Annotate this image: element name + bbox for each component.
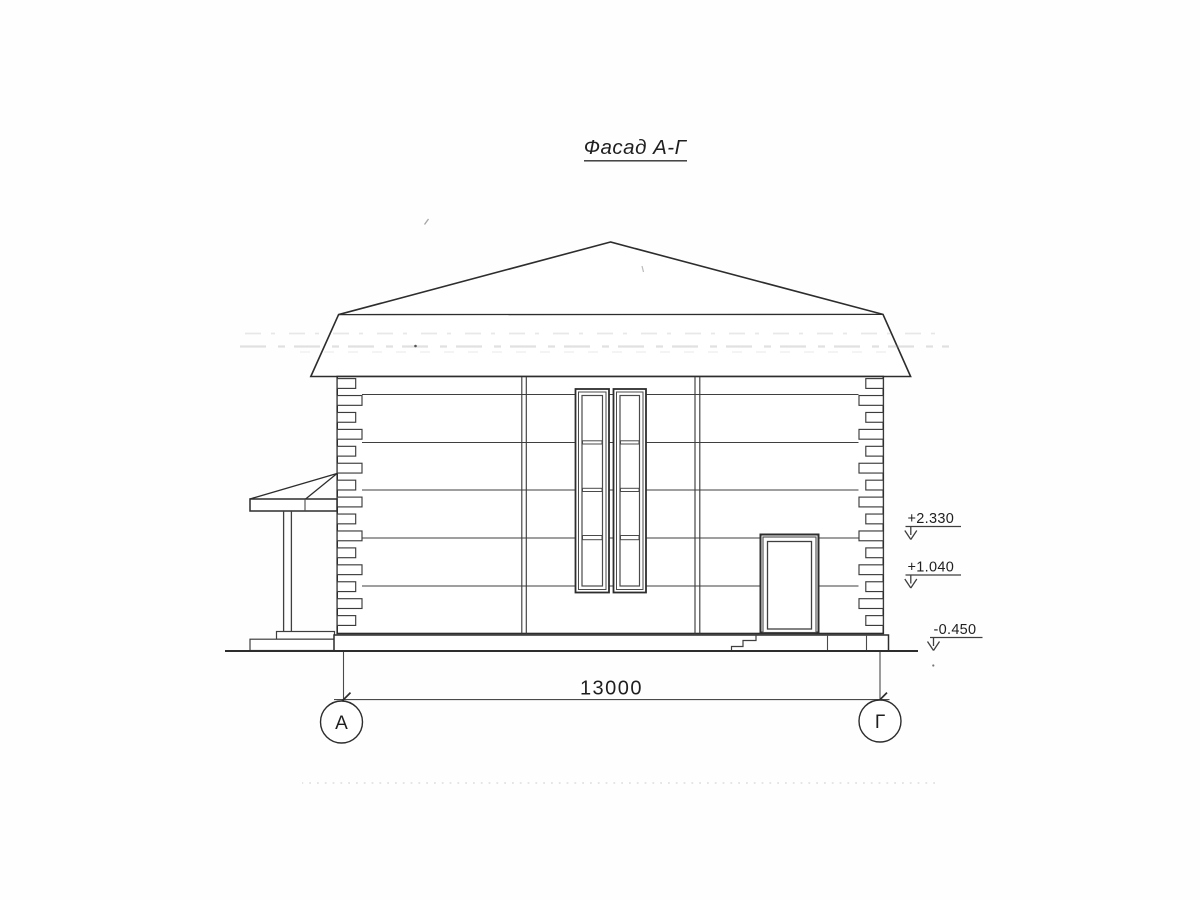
elevation-value: -0.450 xyxy=(934,622,977,638)
log-end xyxy=(866,514,884,524)
log-end xyxy=(859,599,883,609)
log-end xyxy=(337,616,356,626)
entrance-door xyxy=(761,535,819,633)
plinth xyxy=(334,635,889,651)
porch-step xyxy=(250,639,335,650)
elevation-value: +2.330 xyxy=(908,511,955,527)
dimension-value: 13000 xyxy=(580,678,643,700)
log-end xyxy=(337,429,362,439)
porch-step xyxy=(277,632,335,640)
plinth-band xyxy=(334,635,889,651)
door-leaf xyxy=(768,542,812,630)
canopy-slope-inner xyxy=(305,474,337,500)
roof xyxy=(240,242,949,377)
log-end xyxy=(337,514,356,524)
elevation-arrow-icon xyxy=(928,638,940,651)
log-end xyxy=(337,379,356,389)
log-end xyxy=(337,412,356,422)
porch xyxy=(250,474,337,651)
log-end xyxy=(337,582,356,592)
log-end xyxy=(337,497,362,507)
log-end xyxy=(337,480,356,490)
axis-marker-g: Г xyxy=(859,700,901,742)
axis-label-g: Г xyxy=(875,712,885,733)
elevation-arrow-icon xyxy=(905,575,917,588)
elevation-mark-1040: +1.040 xyxy=(905,560,961,589)
log-end xyxy=(866,480,884,490)
log-end xyxy=(859,565,883,575)
log-end xyxy=(866,582,884,592)
log-end xyxy=(337,396,362,406)
window-2 xyxy=(614,389,647,593)
window-1 xyxy=(576,389,610,593)
log-end xyxy=(859,396,883,406)
canopy-fascia xyxy=(250,499,337,511)
roof-outline xyxy=(311,242,911,377)
log-end xyxy=(337,446,356,456)
log-end xyxy=(337,531,362,541)
log-end xyxy=(866,446,884,456)
log-end xyxy=(859,531,883,541)
log-end xyxy=(866,548,884,558)
log-end xyxy=(859,497,883,507)
dimension: 13000 А Г xyxy=(321,652,902,743)
log-end xyxy=(859,429,883,439)
facade-drawing: Фасад А-Г xyxy=(0,0,1200,900)
title-text: Фасад А-Г xyxy=(584,136,688,159)
log-end xyxy=(337,548,356,558)
elevation-mark-0450: -0.450 xyxy=(928,622,983,651)
axis-label-a: А xyxy=(335,713,348,734)
elevation-mark-2330: +2.330 xyxy=(905,511,961,540)
drawing-title: Фасад А-Г xyxy=(584,136,688,161)
elevation-arrow-icon xyxy=(905,527,917,540)
log-end xyxy=(866,412,884,422)
elevation-value: +1.040 xyxy=(908,560,955,576)
log-end xyxy=(859,463,883,473)
log-end xyxy=(337,565,362,575)
drawing-sheet: Фасад А-Г xyxy=(0,0,1200,900)
axis-marker-a: А xyxy=(321,701,363,743)
log-end xyxy=(866,379,884,389)
entrance-step-notch xyxy=(732,636,757,650)
canopy-slope-outer xyxy=(250,474,337,500)
log-end xyxy=(337,599,362,609)
log-end xyxy=(337,463,362,473)
log-end xyxy=(866,616,884,626)
